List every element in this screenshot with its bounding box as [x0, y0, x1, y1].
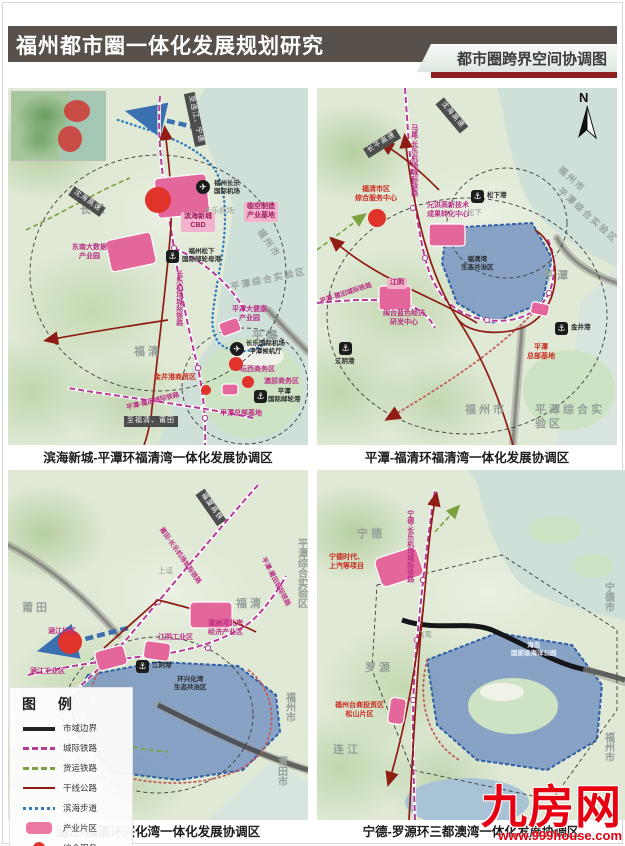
map-panel-binhai-pingtan: 至连江、宁德长乐沈海高速东南大数据 产业园临空制造 产业基地✈福州长乐 国际机场…	[8, 88, 308, 445]
map4-graphics	[317, 470, 625, 820]
map-label: 平潭 国际邮轮港	[268, 388, 301, 404]
map-label: 马尾-长乐机场城际铁路	[409, 124, 418, 196]
legend-item: 产业片区	[22, 822, 124, 834]
page-title: 福州都市圈一体化发展规划研究	[16, 30, 324, 60]
port-icon: ⚓	[471, 190, 484, 203]
port-icon: ⚓	[136, 660, 149, 673]
map-label: 平潭综合实验区	[294, 538, 307, 608]
map-label: 湄洲湾北岸 经济产业区	[208, 620, 243, 638]
map-label: 宁德时代、 上汽等项目	[329, 554, 364, 572]
figure-title: 都市圈跨界空间协调图	[457, 48, 617, 69]
caption-map2: 平潭-福清环福清湾一体化发展协调区	[317, 447, 617, 466]
port-icon: ⚓	[254, 390, 267, 403]
map-label: 宁德-长乐机场城际铁路	[405, 510, 414, 582]
map-label: 涵江工业区	[30, 668, 65, 677]
map-label: 至福清、莆田	[124, 416, 178, 427]
map-label: 江阴港	[335, 358, 355, 366]
map-label: 平潭大健康 产业园	[232, 306, 267, 324]
inset-highlight-circle	[64, 100, 90, 122]
legend-symbol-rect-pink	[22, 822, 56, 834]
map-label: 坛西商务区	[240, 366, 275, 375]
legend-symbol-dash-green	[22, 762, 56, 774]
map-label: 福州长乐 国际机场	[214, 180, 240, 196]
map-label: 东南大数据 产业园	[72, 244, 107, 262]
freight-rail	[435, 508, 457, 532]
map-label: 上迳	[158, 566, 173, 575]
map-label: 福清	[134, 346, 162, 360]
map-label: 罗源	[365, 662, 393, 676]
map-label: 金井港商贸区	[154, 374, 196, 383]
port-icon: ⚓	[339, 342, 352, 355]
intercity-railways	[410, 490, 435, 820]
legend-item: 干线公路	[22, 782, 124, 794]
map-label: 福州市	[282, 692, 295, 722]
map-label: 福州松下 国际邮轮母港	[182, 248, 221, 264]
legend-label: 综合服务	[63, 842, 97, 846]
map-label: 福清	[236, 598, 264, 612]
legend-symbol-line-red	[22, 782, 56, 794]
map-label: 宁德市	[601, 582, 614, 612]
map-label: 莆田	[22, 602, 50, 616]
airport-icon: ✈	[230, 342, 244, 356]
legend-symbol-dot-blue	[22, 802, 56, 814]
legend-label: 干线公路	[63, 782, 97, 794]
figure-title-tab: 都市圈跨界空间协调图	[417, 44, 617, 72]
map-label: 环兴化湾 生态共治区	[174, 676, 207, 692]
map-panel-ningde-luoyuan: 宁德宁德-长乐机场城际铁路宁德时代、 上汽等项目海岛 国家级海洋公园飞鸾罗源福州…	[317, 470, 625, 820]
legend-items: 市域边界城际铁路货运铁路干线公路滨海步道产业片区综合服务生态共治区	[12, 722, 130, 846]
caption-map1: 滨海新城-平潭环福清湾一体化发展协调区	[8, 447, 308, 466]
map-label: 福州市	[601, 732, 614, 762]
map-label: 澳前商务区	[264, 378, 299, 387]
map-label: 连江	[333, 744, 361, 758]
legend-label: 滨海步道	[63, 802, 97, 814]
legend-label: 产业片区	[63, 822, 97, 834]
map-label: 福清湾 生态共治区	[461, 256, 494, 272]
map-label: 金井港	[571, 324, 591, 332]
legend-item: 市域边界	[22, 722, 124, 734]
header-red-strip	[431, 72, 617, 78]
port-icon: ⚓	[166, 250, 179, 263]
map-label: 莆田市	[274, 756, 287, 786]
map-label: 长乐国际机场 平潭候机厅	[246, 340, 285, 356]
legend-label: 城际铁路	[63, 742, 97, 754]
map-label: 松下港	[487, 192, 507, 200]
watermark: 九房网 www.999house.com	[481, 784, 622, 843]
map-label: 福州市	[465, 404, 507, 418]
map-label: 福清市区 综合服务中心	[355, 186, 397, 204]
map-label: 松下	[467, 208, 482, 217]
inset-overview-map	[11, 91, 106, 161]
map-label: 元洪高新技术 成果转化中心	[427, 202, 469, 220]
map-label: 长乐机场城际铁路	[174, 270, 183, 326]
planning-figure-page: 福州都市圈一体化发展规划研究 都市圈跨界空间协调图	[0, 0, 625, 846]
map-label: 滨海新城 CBD	[181, 212, 215, 232]
watermark-brand: 九房网	[481, 784, 622, 830]
map-panel-pingtan-fuqing: N沈海高速长平高速马尾-长乐机场城际铁路⚓松下港松下福州市平潭综合实验区福清市区…	[317, 88, 617, 445]
legend-symbol-dash-magenta	[22, 742, 56, 754]
map-label: 平潭总部基地	[220, 410, 262, 419]
legend-item: 滨海步道	[22, 802, 124, 814]
legend-label: 市域边界	[63, 722, 97, 734]
map-label: 涵江片区	[48, 628, 76, 637]
airport-icon: ✈	[196, 180, 210, 194]
legend-symbol-line-black	[22, 722, 56, 734]
freight-rail	[317, 216, 363, 250]
watermark-url: www.999house.com	[481, 828, 622, 843]
map-label: 临空制造 产业基地	[244, 202, 278, 222]
map-label: 平潭	[543, 270, 571, 284]
legend-item: 综合服务	[22, 842, 124, 846]
freight-rail	[26, 178, 130, 230]
map-label: 海岛 国家级海洋公园	[511, 642, 557, 658]
map-label: 江阴	[387, 278, 407, 289]
map-label: 闽台蓝色经济 研发中心	[383, 310, 425, 328]
north-arrow-label: N	[579, 90, 588, 106]
map-label: 平潭综合实验区	[535, 404, 617, 432]
legend-item: 城际铁路	[22, 742, 124, 754]
legend-symbol-circle-red	[22, 842, 56, 846]
map-label: 江阴工业区	[158, 634, 193, 643]
legend-label: 货运铁路	[63, 762, 97, 774]
port-icon: ⚓	[555, 322, 568, 335]
legend-panel: 图 例 市域边界城际铁路货运铁路干线公路滨海步道产业片区综合服务生态共治区	[9, 687, 133, 846]
legend-item: 货运铁路	[22, 762, 124, 774]
map-label: 福州台商投资区 松山片区	[335, 702, 384, 720]
map-label: 江阴港	[152, 662, 172, 670]
legend-title: 图 例	[22, 694, 130, 714]
service-nodes	[368, 209, 386, 227]
inset-highlight-circle	[58, 126, 82, 152]
map-label: 平潭 总部基地	[527, 344, 555, 362]
map-label: 飞鸾	[417, 630, 432, 639]
map-label: 宁德	[357, 528, 385, 542]
